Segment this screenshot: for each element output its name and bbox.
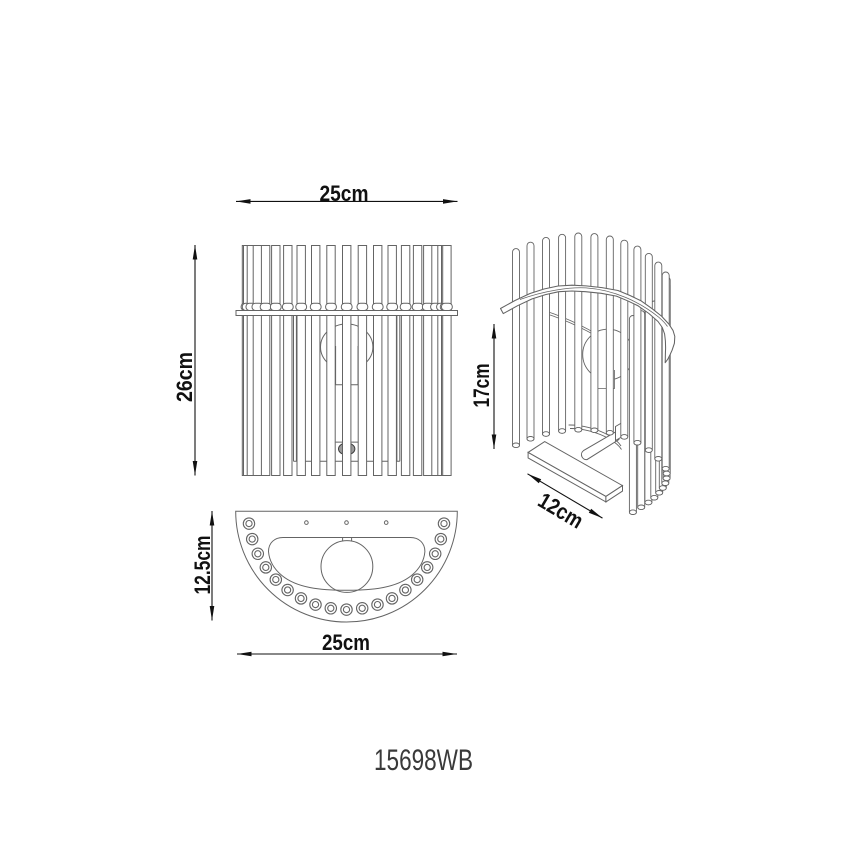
- svg-text:25cm: 25cm: [322, 630, 370, 655]
- svg-text:26cm: 26cm: [172, 352, 197, 402]
- svg-text:12.5cm: 12.5cm: [190, 536, 215, 595]
- svg-text:15698WB: 15698WB: [374, 744, 473, 777]
- svg-text:25cm: 25cm: [320, 181, 369, 206]
- svg-text:17cm: 17cm: [469, 364, 494, 408]
